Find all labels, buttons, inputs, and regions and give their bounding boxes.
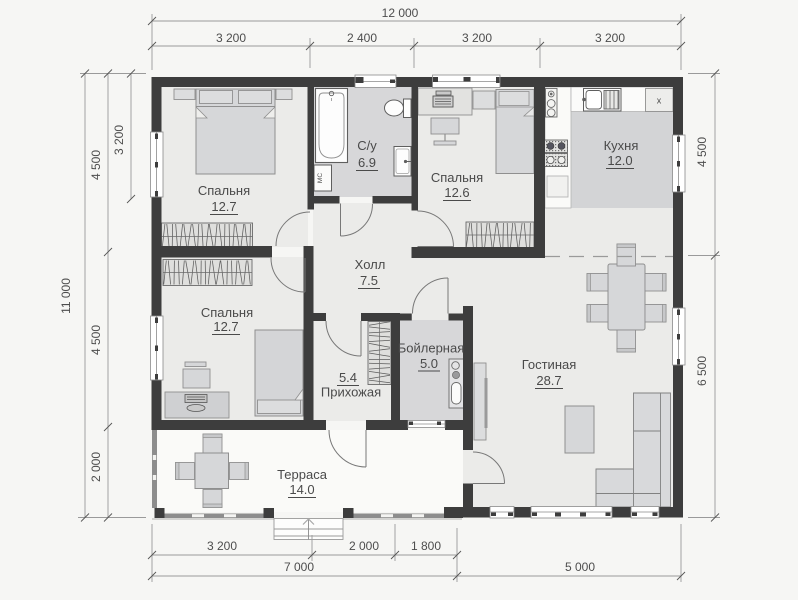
svg-text:5.4: 5.4 xyxy=(339,370,357,385)
svg-text:x: x xyxy=(657,96,662,106)
svg-text:Кухня: Кухня xyxy=(604,138,639,153)
svg-text:Холл: Холл xyxy=(355,257,386,272)
svg-text:6.9: 6.9 xyxy=(358,155,376,170)
svg-text:6 500: 6 500 xyxy=(695,356,709,386)
svg-text:1 800: 1 800 xyxy=(411,539,441,553)
svg-text:4 500: 4 500 xyxy=(695,137,709,167)
svg-text:МС: МС xyxy=(317,173,324,183)
svg-text:11 000: 11 000 xyxy=(59,278,73,314)
svg-text:14.0: 14.0 xyxy=(289,482,314,497)
svg-text:7.5: 7.5 xyxy=(360,273,378,288)
svg-text:12.7: 12.7 xyxy=(213,319,238,334)
svg-text:3 200: 3 200 xyxy=(216,31,246,45)
svg-text:Спальня: Спальня xyxy=(431,170,483,185)
svg-text:Прихожая: Прихожая xyxy=(321,385,381,400)
svg-text:12.0: 12.0 xyxy=(607,153,632,168)
svg-text:2 000: 2 000 xyxy=(349,539,379,553)
svg-text:28.7: 28.7 xyxy=(536,373,561,388)
svg-text:Бойлерная: Бойлерная xyxy=(398,341,465,356)
svg-text:Терраса: Терраса xyxy=(277,467,328,482)
svg-text:3 200: 3 200 xyxy=(462,31,492,45)
svg-text:2 400: 2 400 xyxy=(347,31,377,45)
svg-text:12 000: 12 000 xyxy=(382,6,419,20)
svg-text:5 000: 5 000 xyxy=(565,560,595,574)
svg-text:Гостиная: Гостиная xyxy=(522,357,577,372)
svg-text:7 000: 7 000 xyxy=(284,560,314,574)
svg-text:4 500: 4 500 xyxy=(89,150,103,180)
svg-text:3 200: 3 200 xyxy=(207,539,237,553)
svg-text:3 200: 3 200 xyxy=(112,125,126,155)
svg-text:12.6: 12.6 xyxy=(444,185,469,200)
svg-text:С/у: С/у xyxy=(357,138,377,153)
svg-text:Спальня: Спальня xyxy=(198,183,250,198)
svg-text:Спальня: Спальня xyxy=(201,305,253,320)
svg-text:5.0: 5.0 xyxy=(420,356,438,371)
svg-text:12.7: 12.7 xyxy=(211,199,236,214)
svg-text:3 200: 3 200 xyxy=(595,31,625,45)
svg-text:4 500: 4 500 xyxy=(89,325,103,355)
svg-text:2 000: 2 000 xyxy=(89,452,103,482)
